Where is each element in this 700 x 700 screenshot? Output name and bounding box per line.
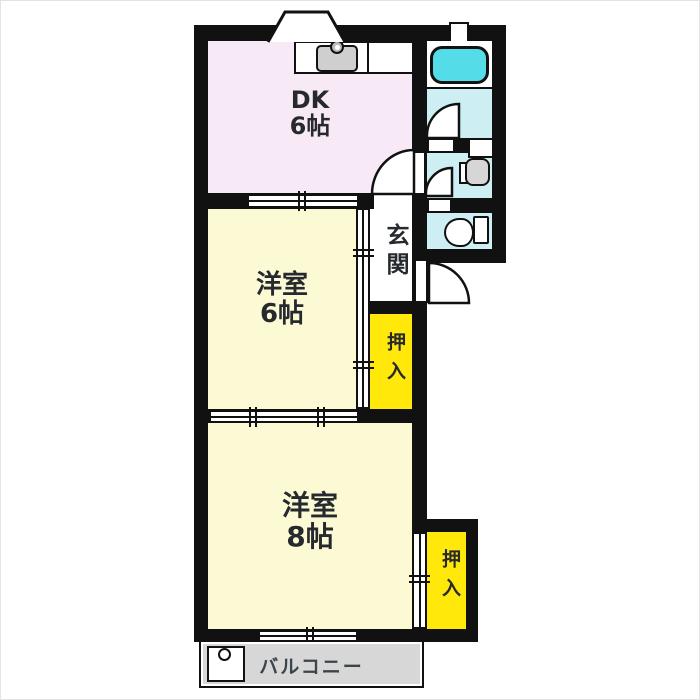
sliding-door-tick <box>353 249 374 257</box>
dk-label: DK 6帖 <box>248 87 372 139</box>
sliding-door-tick <box>317 407 325 427</box>
sliding-door-tick <box>409 575 430 583</box>
dk-size: 6帖 <box>248 113 372 139</box>
washbasin-icon <box>465 158 490 186</box>
faucet-dot <box>335 45 340 50</box>
lavatory-corner-nook <box>468 140 492 158</box>
bathtub-icon <box>430 46 489 84</box>
sliding-door-track <box>362 210 364 407</box>
west8-label: 洋室 8帖 <box>240 490 380 552</box>
sliding-door-tick <box>298 191 306 211</box>
toilet-tank <box>473 216 489 244</box>
west6-name: 洋室 <box>212 271 352 300</box>
floorplan-canvas: DK 6帖 洋室 6帖 洋室 8帖 玄関 押入 押入 バルコニー <box>0 0 700 700</box>
vent-notch <box>449 22 469 41</box>
sliding-door-icon <box>247 194 359 208</box>
washroom-door-arc-icon <box>425 102 463 140</box>
lavatory-door-arc-icon <box>424 166 456 198</box>
toilet-icon <box>444 218 474 247</box>
west6-size: 6帖 <box>212 300 352 329</box>
entrance-door-arc-icon <box>427 261 471 305</box>
balcony-label: バルコニー <box>199 652 424 679</box>
west8-name: 洋室 <box>240 490 380 521</box>
washroom-door-leaf <box>427 138 455 153</box>
wall-left <box>194 25 208 642</box>
sliding-door-tick <box>249 407 257 427</box>
wall-lavatory-toilet <box>414 198 492 213</box>
sliding-door-tick <box>353 361 374 369</box>
wall-bath-washroom-line <box>426 87 492 89</box>
kitchen-counter-divider <box>367 41 369 74</box>
sliding-door-icon <box>412 532 427 629</box>
west8-size: 8帖 <box>240 521 380 552</box>
dk-name: DK <box>248 87 372 113</box>
toilet-door-leaf <box>427 198 452 213</box>
west6-label: 洋室 6帖 <box>212 271 352 329</box>
sliding-door-icon <box>209 410 359 423</box>
sliding-door-icon <box>356 208 370 409</box>
sliding-door-track <box>211 416 357 418</box>
entrance-door-leaf <box>414 259 428 303</box>
wall-closet2-right <box>466 519 478 642</box>
genkan-label: 玄関 <box>378 223 412 281</box>
wall-bath-right <box>492 25 506 263</box>
bay-window-icon <box>264 9 350 43</box>
closet2-label: 押入 <box>437 549 464 607</box>
closet1-label: 押入 <box>382 332 409 390</box>
door-arc-icon <box>370 148 416 196</box>
